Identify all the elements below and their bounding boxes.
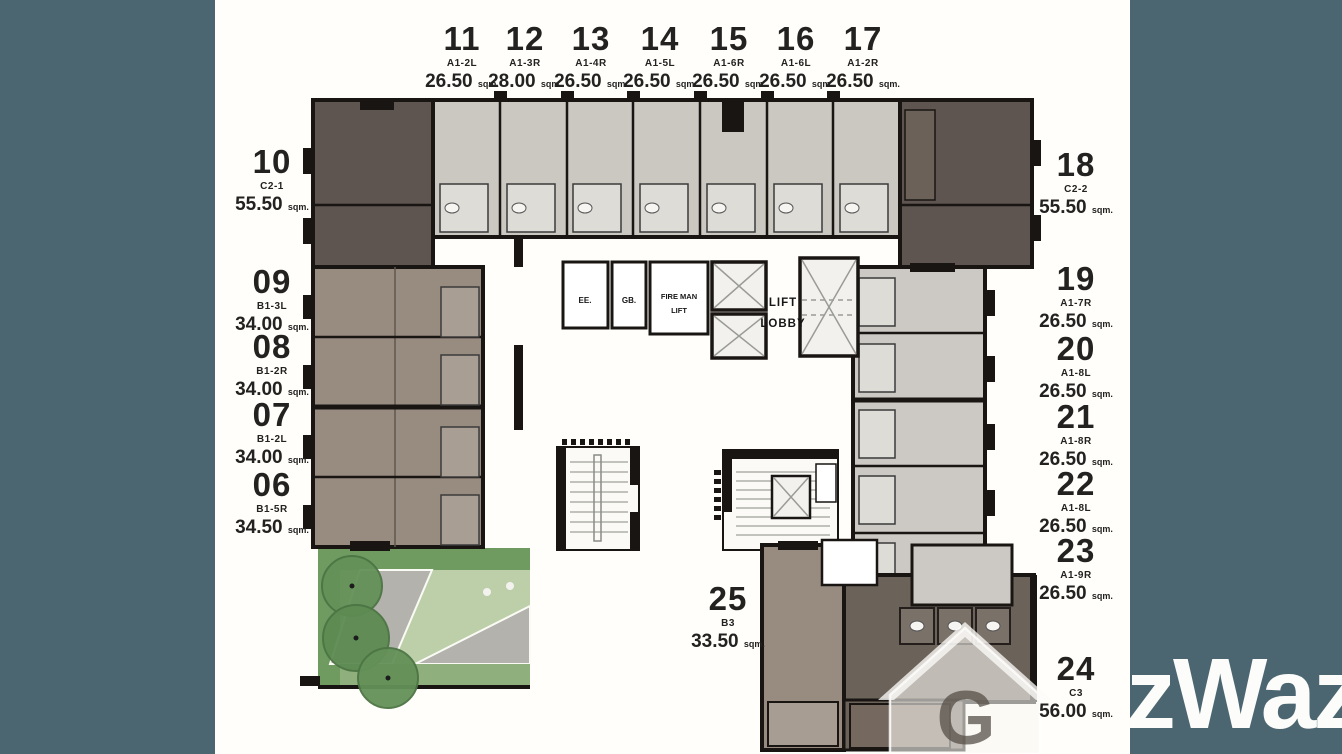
unit-area: 26.50 sqm. [623,72,697,91]
unit-number: 07 [235,398,309,431]
unit-label-19: 19 A1-7R 26.50 sqm. [1039,262,1113,331]
unit-area: 26.50 sqm. [826,72,900,91]
unit-area: 26.50 sqm. [1039,584,1113,603]
stairs-right-shape [714,450,838,550]
unit-label-07: 07 B1-2L 34.00 sqm. [235,398,309,467]
stairs-left-shape [557,439,639,550]
unit-area: 34.50 sqm. [235,518,309,537]
unit-number: 09 [235,265,309,298]
unit-number: 21 [1039,400,1113,433]
unit-type: A1-8L [1039,504,1113,514]
unit-label-21: 21 A1-8R 26.50 sqm. [1039,400,1113,469]
unit-type: A1-7R [1039,299,1113,309]
unit-type: B1-2R [235,367,309,377]
unit-number: 25 [691,582,765,615]
unit-type: A1-4R [554,59,628,69]
unit-18-shape [900,100,1041,267]
unit-type: B1-2L [235,435,309,445]
unit-label-10: 10 C2-1 55.50 sqm. [235,145,309,214]
unit-type: A1-2R [826,59,900,69]
unit-type: A1-6L [759,59,833,69]
watermark-text: zWaz [1126,644,1342,744]
unit-area: 56.00 sqm. [1039,702,1113,721]
top-row-units-shape [433,91,900,237]
unit-10-shape [303,100,433,267]
unit-type: A1-8R [1039,437,1113,447]
unit-label-18: 18 C2-2 55.50 sqm. [1039,148,1113,217]
core-label-lift-lobby: LIFT LOBBY [760,293,805,334]
unit-area: 26.50 sqm. [554,72,628,91]
unit-number: 13 [554,22,628,55]
garden [300,548,530,708]
unit-type: C3 [1039,689,1113,699]
unit-number: 23 [1039,534,1113,567]
unit-number: 08 [235,330,309,363]
core-label-ee: EE. [579,296,592,305]
unit-number: 15 [692,22,766,55]
unit-number: 24 [1039,652,1113,685]
unit-area: 26.50 sqm. [1039,312,1113,331]
unit-area: 33.50 sqm. [691,632,765,651]
unit-label-13: 13 A1-4R 26.50 sqm. [554,22,628,91]
unit-label-17: 17 A1-2R 26.50 sqm. [826,22,900,91]
unit-label-25: 25 B3 33.50 sqm. [691,582,765,651]
unit-number: 14 [623,22,697,55]
core-label-gb: GB. [622,296,636,305]
watermark-house-letter: G [936,676,995,754]
unit-number: 10 [235,145,309,178]
unit-label-09: 09 B1-3L 34.00 sqm. [235,265,309,334]
left-wing-shape [303,267,483,551]
unit-type: B1-5R [235,505,309,515]
unit-area: 55.50 sqm. [235,195,309,214]
unit-label-16: 16 A1-6L 26.50 sqm. [759,22,833,91]
unit-label-08: 08 B1-2R 34.00 sqm. [235,330,309,399]
floorplan-screenshot: G 11 A1-2L 26.50 sqm. 12 A1-3R 28.00 sqm… [0,0,1342,754]
unit-area: 26.50 sqm. [692,72,766,91]
unit-type: B3 [691,619,765,629]
unit-number: 22 [1039,467,1113,500]
unit-label-22: 22 A1-8L 26.50 sqm. [1039,467,1113,536]
unit-number: 19 [1039,262,1113,295]
unit-label-12: 12 A1-3R 28.00 sqm. [488,22,562,91]
unit-area: 55.50 sqm. [1039,198,1113,217]
unit-type: C2-1 [235,182,309,192]
unit-area: 28.00 sqm. [488,72,562,91]
lift-core-shape [514,237,858,430]
unit-type: C2-2 [1039,185,1113,195]
unit-label-23: 23 A1-9R 26.50 sqm. [1039,534,1113,603]
unit-area: 34.00 sqm. [235,448,309,467]
unit-label-14: 14 A1-5L 26.50 sqm. [623,22,697,91]
core-label-fireman-lift: FIRE MAN LIFT [661,290,697,319]
unit-number: 06 [235,468,309,501]
unit-number: 20 [1039,332,1113,365]
unit-type: A1-5L [623,59,697,69]
unit-type: A1-3R [488,59,562,69]
unit-label-20: 20 A1-8L 26.50 sqm. [1039,332,1113,401]
unit-type: A1-9R [1039,571,1113,581]
unit-number: 17 [826,22,900,55]
unit-area: 26.50 sqm. [759,72,833,91]
unit-number: 18 [1039,148,1113,181]
unit-label-24: 24 C3 56.00 sqm. [1039,652,1113,721]
unit-label-06: 06 B1-5R 34.50 sqm. [235,468,309,537]
unit-type: A1-6R [692,59,766,69]
unit-type: B1-3L [235,302,309,312]
unit-number: 16 [759,22,833,55]
unit-label-15: 15 A1-6R 26.50 sqm. [692,22,766,91]
unit-number: 12 [488,22,562,55]
unit-type: A1-8L [1039,369,1113,379]
